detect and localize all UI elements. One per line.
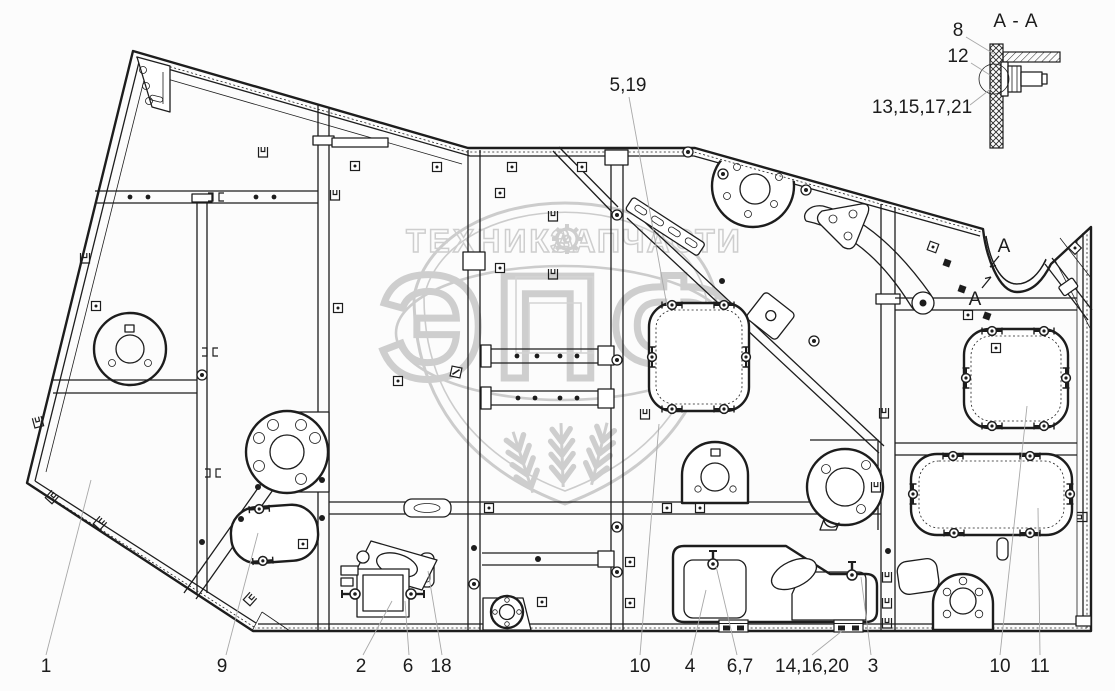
flange-six-hole [246, 411, 329, 493]
flange-bottom-right [933, 574, 993, 630]
panel-drawing-svg: ТЕХНИКА ЗАПЧАСТИ ЭПФ [0, 0, 1115, 691]
callout-14-16-20: 14,16,20 [775, 656, 849, 677]
rail-bracket [404, 499, 451, 517]
corner-bracket [137, 57, 170, 112]
callout-3: 3 [868, 656, 879, 677]
panel-strip [1003, 52, 1060, 62]
detail-label-13-15-17-21: 13,15,17,21 [872, 97, 972, 118]
technical-drawing-canvas: ТЕХНИКА ЗАПЧАСТИ ЭПФ [0, 0, 1115, 691]
hatch-covers [229, 301, 1074, 568]
detail-title: A - A [993, 11, 1038, 32]
section-markers: A A [969, 236, 1011, 310]
hatch-cover-right-lower [909, 452, 1075, 538]
cover-left-round [229, 501, 320, 568]
bolt [1001, 62, 1047, 96]
lid-assembly [673, 546, 877, 632]
callout-2: 2 [356, 656, 367, 677]
callout-6-7: 6,7 [727, 656, 753, 677]
flange-small-bottom [483, 596, 531, 630]
detail-label-12: 12 [947, 46, 968, 67]
latch [834, 620, 863, 632]
callout-5-19: 5,19 [610, 75, 647, 96]
arm-assembly [805, 204, 934, 314]
callout-9: 9 [217, 656, 228, 677]
thumbscrew [847, 562, 857, 580]
section-marker-a-lower: A [969, 289, 982, 310]
hatch-cover-mid [648, 301, 751, 414]
flange-mid [682, 442, 748, 503]
callout-18: 18 [430, 656, 451, 677]
callout-6: 6 [403, 656, 414, 677]
callout-11: 11 [1030, 656, 1050, 677]
section-marker-a-upper: A [998, 236, 1011, 257]
u-cutout-detail [943, 236, 1046, 320]
flange-left [94, 313, 166, 385]
detail-view-a-a: A - A 8 12 13,15,17,21 [872, 11, 1060, 148]
hatch-cover-right-upper [962, 327, 1071, 431]
callout-1: 1 [41, 656, 52, 677]
detail-label-8: 8 [953, 20, 964, 41]
callout-4: 4 [685, 656, 696, 677]
callout-10-left: 10 [629, 656, 650, 677]
latch [719, 620, 748, 632]
access-plate-assembly [341, 541, 437, 617]
callout-10-right: 10 [989, 656, 1010, 677]
